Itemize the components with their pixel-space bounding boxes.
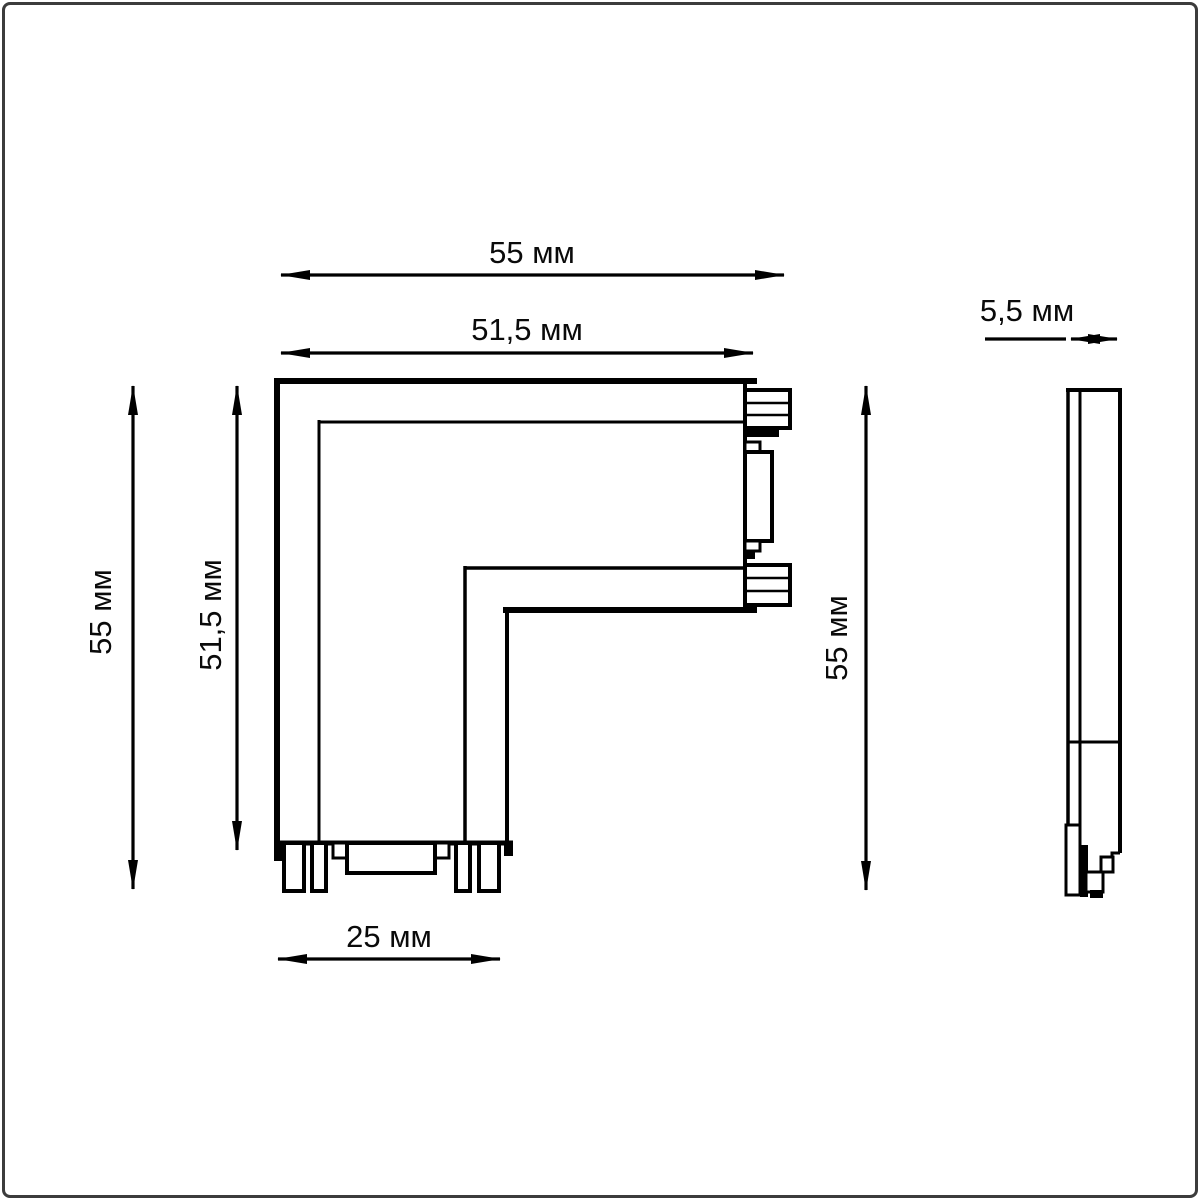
foot-center-tab <box>347 843 435 873</box>
foot-stub-right <box>504 843 513 856</box>
side-step-black <box>1090 890 1103 898</box>
side-view <box>1066 388 1122 898</box>
side-step-1 <box>1101 857 1113 872</box>
connector-bar-bottom <box>745 552 755 559</box>
foot-2 <box>312 843 326 891</box>
front-view <box>274 378 790 891</box>
technical-drawing-canvas: 55 мм 51,5 мм 55 мм 51,5 мм 55 мм 25 мм … <box>0 0 1200 1200</box>
connector-bar-top <box>745 429 779 437</box>
connector-tab-bottom <box>745 565 790 605</box>
foot-stub-left <box>274 843 283 861</box>
foot-wing-left <box>333 843 347 858</box>
side-left-foot <box>1066 825 1080 895</box>
foot-3 <box>456 843 470 891</box>
side-step-2 <box>1086 872 1103 892</box>
connector-contact-block <box>745 452 772 541</box>
drawing-linework <box>0 0 1200 1200</box>
connector-tab-top <box>745 390 790 428</box>
foot-wing-right <box>435 843 449 858</box>
connector-notch-bottom <box>745 541 760 551</box>
foot-4 <box>479 843 499 891</box>
foot-1 <box>284 843 304 891</box>
